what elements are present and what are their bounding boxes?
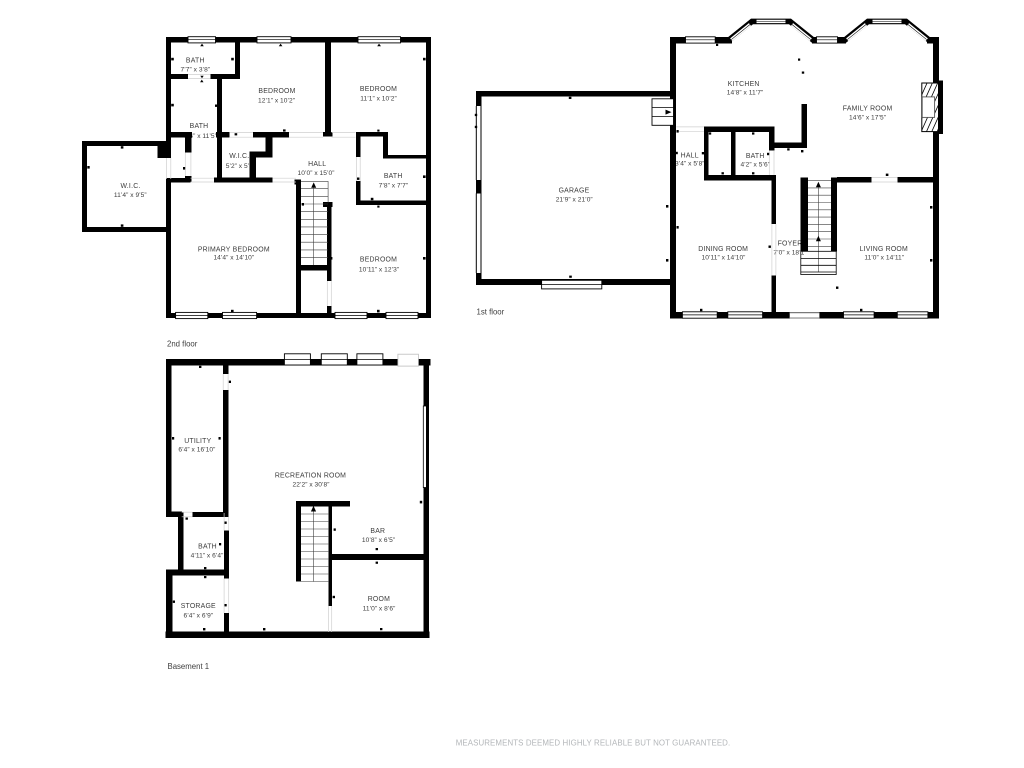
svg-text:1st floor: 1st floor: [477, 308, 505, 317]
svg-text:11’0” x 14’11”: 11’0” x 14’11”: [864, 255, 904, 262]
svg-text:W.I.C.: W.I.C.: [120, 183, 140, 190]
svg-text:KITCHEN: KITCHEN: [728, 81, 760, 88]
svg-text:MEASUREMENTS DEEMED HIGHLY REL: MEASUREMENTS DEEMED HIGHLY RELIABLE BUT …: [456, 739, 731, 748]
svg-text:11’0” x 8’6”: 11’0” x 8’6”: [363, 606, 396, 613]
svg-text:11’4” x 9’5”: 11’4” x 9’5”: [114, 192, 147, 199]
svg-text:14’8” x 11’7”: 14’8” x 11’7”: [727, 90, 763, 97]
svg-text:FAMILY ROOM: FAMILY ROOM: [843, 105, 893, 112]
svg-text:7’8” x 7’7”: 7’8” x 7’7”: [379, 182, 409, 189]
svg-text:6’4” x 6’9”: 6’4” x 6’9”: [184, 612, 214, 619]
svg-text:FOYER: FOYER: [778, 240, 803, 247]
svg-text:ROOM: ROOM: [368, 596, 390, 603]
svg-text:11’1” x 10’2”: 11’1” x 10’2”: [360, 95, 396, 102]
svg-text:BATH: BATH: [198, 543, 217, 550]
svg-text:BEDROOM: BEDROOM: [360, 257, 397, 264]
svg-text:10’11” x 12’3”: 10’11” x 12’3”: [359, 267, 399, 274]
svg-text:BATH: BATH: [190, 123, 209, 130]
svg-text:PRIMARY BEDROOM: PRIMARY BEDROOM: [198, 246, 270, 253]
svg-text:Basement 1: Basement 1: [168, 662, 210, 671]
svg-text:4’2” x 5’6”: 4’2” x 5’6”: [740, 162, 770, 169]
svg-text:BATH: BATH: [186, 57, 205, 64]
svg-text:3’4” x 5’8”: 3’4” x 5’8”: [675, 160, 705, 167]
svg-text:W.I.C.: W.I.C.: [229, 153, 249, 160]
svg-text:10’11” x 14’10”: 10’11” x 14’10”: [702, 255, 746, 262]
svg-text:10’8” x 6’5”: 10’8” x 6’5”: [362, 537, 395, 544]
svg-text:DINING ROOM: DINING ROOM: [698, 246, 748, 253]
svg-text:6’4” x 16’10”: 6’4” x 16’10”: [178, 447, 215, 454]
svg-text:21’9” x 21’0”: 21’9” x 21’0”: [556, 196, 593, 203]
svg-text:HALL: HALL: [308, 161, 326, 168]
svg-text:LIVING ROOM: LIVING ROOM: [860, 246, 908, 253]
svg-text:BEDROOM: BEDROOM: [258, 88, 295, 95]
svg-text:4’11” x 6’4”: 4’11” x 6’4”: [191, 553, 224, 560]
svg-text:2nd floor: 2nd floor: [167, 340, 198, 349]
svg-text:HALL: HALL: [681, 152, 699, 159]
svg-text:22’2” x 30’8”: 22’2” x 30’8”: [293, 481, 330, 488]
svg-text:12’1” x 10’2”: 12’1” x 10’2”: [258, 97, 295, 104]
svg-text:7’7” x 3’8”: 7’7” x 3’8”: [181, 67, 211, 74]
svg-text:10’0” x 15’0”: 10’0” x 15’0”: [298, 170, 335, 177]
svg-text:14’4” x 14’10”: 14’4” x 14’10”: [213, 255, 254, 262]
svg-text:BATH: BATH: [746, 153, 765, 160]
svg-text:STORAGE: STORAGE: [181, 603, 216, 610]
svg-text:GARAGE: GARAGE: [559, 187, 590, 194]
svg-text:RECREATION ROOM: RECREATION ROOM: [275, 472, 346, 479]
svg-text:BAR: BAR: [370, 528, 385, 535]
svg-text:BEDROOM: BEDROOM: [360, 86, 397, 93]
svg-text:14’6” x 17’5”: 14’6” x 17’5”: [849, 115, 886, 122]
svg-text:UTILITY: UTILITY: [184, 438, 211, 445]
svg-text:BATH: BATH: [384, 173, 403, 180]
